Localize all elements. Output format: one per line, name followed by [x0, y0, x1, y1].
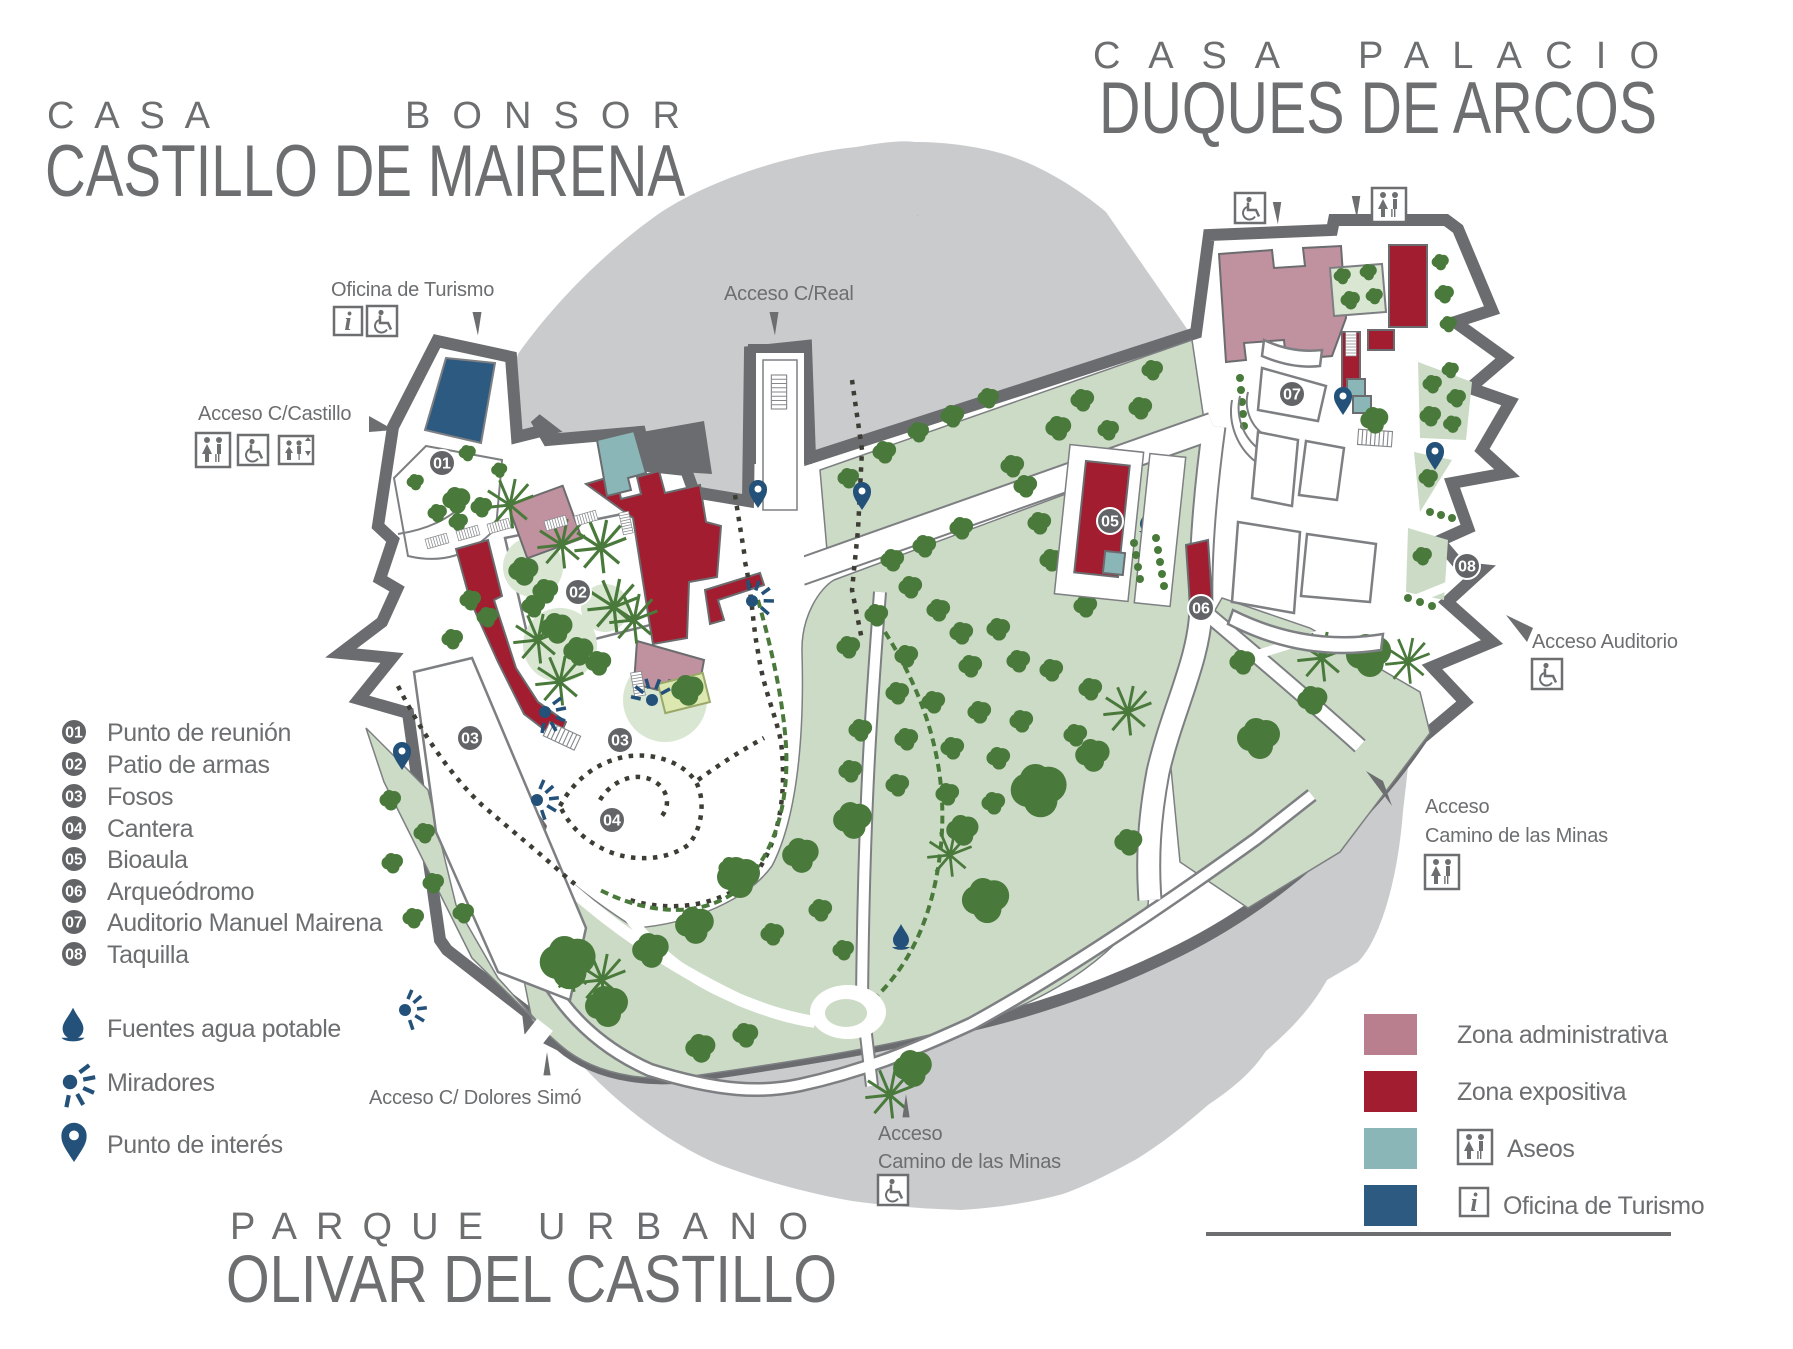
svg-text:02: 02 [65, 757, 83, 774]
svg-text:01: 01 [433, 456, 451, 473]
svg-text:Miradores: Miradores [107, 1069, 215, 1097]
svg-text:03: 03 [65, 789, 83, 806]
svg-text:Acceso C/Castillo: Acceso C/Castillo [198, 403, 351, 425]
svg-text:08: 08 [1458, 559, 1476, 576]
svg-text:Arqueódromo: Arqueódromo [107, 878, 254, 906]
svg-text:Camino de las Minas: Camino de las Minas [1425, 825, 1608, 847]
svg-text:03: 03 [611, 733, 629, 750]
svg-text:07: 07 [65, 915, 83, 932]
svg-text:05: 05 [1101, 514, 1119, 531]
svg-text:Aseos: Aseos [1507, 1135, 1574, 1163]
svg-text:OLIVAR DEL CASTILLO: OLIVAR DEL CASTILLO [226, 1242, 837, 1317]
svg-text:04: 04 [65, 821, 83, 838]
svg-text:01: 01 [65, 725, 83, 742]
svg-text:Acceso Auditorio: Acceso Auditorio [1532, 631, 1678, 653]
svg-text:04: 04 [603, 813, 621, 830]
svg-text:Fosos: Fosos [107, 783, 173, 811]
svg-text:Acceso C/ Dolores Simó: Acceso C/ Dolores Simó [369, 1087, 581, 1109]
svg-text:Taquilla: Taquilla [107, 941, 189, 969]
svg-text:Acceso C/Real: Acceso C/Real [724, 283, 854, 305]
svg-text:Zona expositiva: Zona expositiva [1457, 1078, 1627, 1106]
svg-text:08: 08 [65, 947, 83, 964]
svg-text:Zona administrativa: Zona administrativa [1457, 1021, 1668, 1049]
svg-text:Oficina de Turismo: Oficina de Turismo [331, 279, 494, 301]
svg-text:DUQUES DE ARCOS: DUQUES DE ARCOS [1099, 68, 1657, 149]
svg-text:02: 02 [569, 585, 587, 602]
svg-text:CASTILLO DE MAIRENA: CASTILLO DE MAIRENA [45, 131, 685, 212]
svg-text:05: 05 [65, 852, 83, 869]
svg-text:06: 06 [1192, 601, 1210, 618]
svg-text:Auditorio Manuel Mairena: Auditorio Manuel Mairena [107, 909, 383, 937]
svg-text:Punto de reunión: Punto de reunión [107, 719, 291, 747]
svg-text:Bioaula: Bioaula [107, 846, 188, 874]
svg-text:Fuentes agua potable: Fuentes agua potable [107, 1015, 341, 1043]
svg-text:07: 07 [1283, 387, 1301, 404]
svg-text:Acceso: Acceso [1425, 796, 1489, 818]
svg-text:Punto de interés: Punto de interés [107, 1131, 283, 1159]
svg-text:Oficina de Turismo: Oficina de Turismo [1503, 1192, 1704, 1220]
svg-text:Cantera: Cantera [107, 815, 194, 843]
svg-text:03: 03 [461, 731, 479, 748]
svg-text:Acceso: Acceso [878, 1123, 942, 1145]
svg-text:06: 06 [65, 884, 83, 901]
svg-text:Camino de las Minas: Camino de las Minas [878, 1151, 1061, 1173]
svg-text:Patio de armas: Patio de armas [107, 751, 270, 779]
